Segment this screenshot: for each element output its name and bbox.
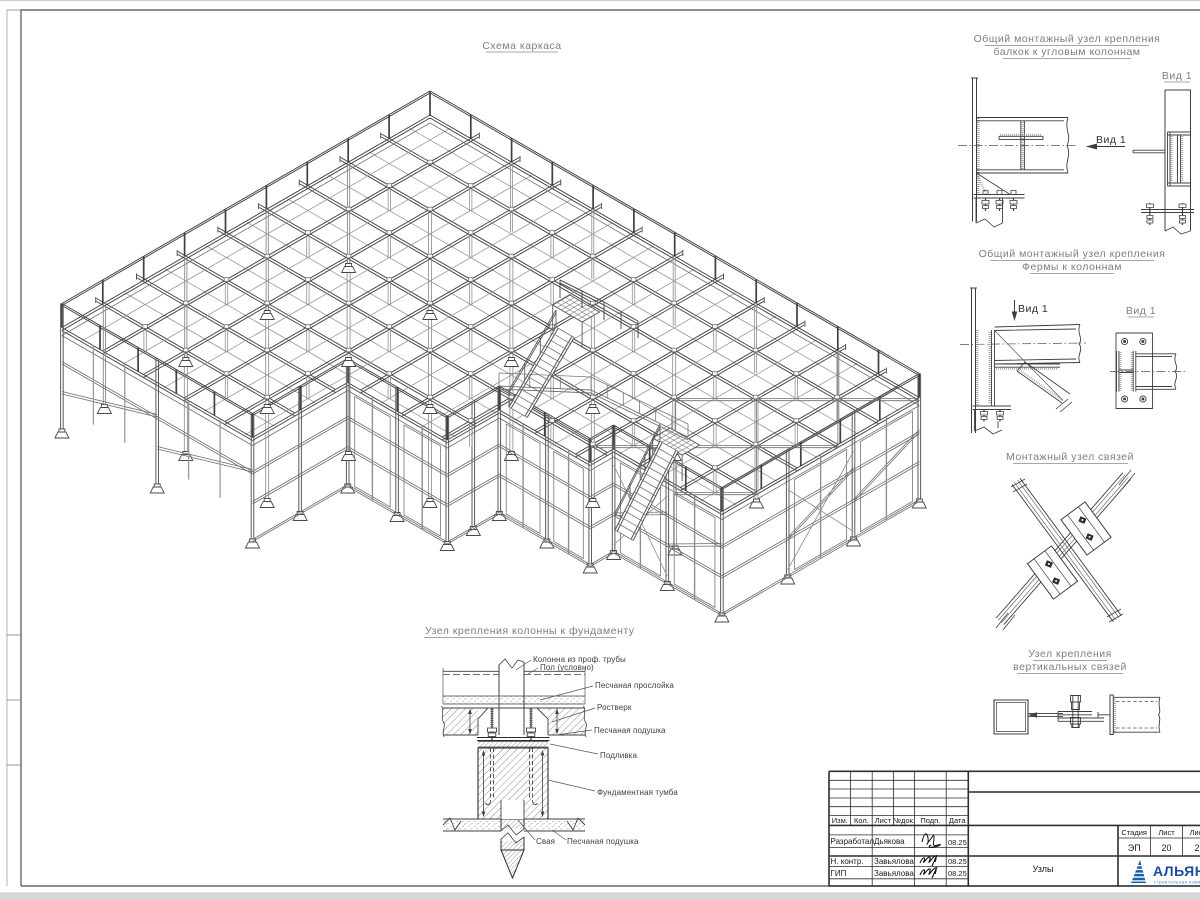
svg-text:балкок к угловым колоннам: балкок к угловым колоннам xyxy=(993,46,1140,58)
svg-text:Узел крепления колонны к фунда: Узел крепления колонны к фундаменту xyxy=(425,625,635,637)
svg-text:Н. контр.: Н. контр. xyxy=(831,857,864,866)
svg-text:Монтажный узел связей: Монтажный узел связей xyxy=(1006,451,1134,463)
svg-text:Вид 1: Вид 1 xyxy=(1096,134,1126,146)
svg-text:Свая: Свая xyxy=(536,837,555,846)
svg-text:Песчаная подушка: Песчаная подушка xyxy=(594,726,666,735)
svg-text:Узлы: Узлы xyxy=(1033,864,1054,874)
svg-text:вертикальных связей: вертикальных связей xyxy=(1013,661,1127,673)
svg-text:Завьялова: Завьялова xyxy=(874,869,914,878)
svg-text:Стадия: Стадия xyxy=(1121,828,1147,837)
svg-text:строительная комп: строительная комп xyxy=(1154,880,1200,885)
svg-text:08.25: 08.25 xyxy=(948,838,967,847)
svg-text:Фермы к колоннам: Фермы к колоннам xyxy=(1022,261,1122,273)
svg-text:Дьякова: Дьякова xyxy=(874,837,905,846)
svg-text:Ростверк: Ростверк xyxy=(597,703,632,712)
svg-text:08.25: 08.25 xyxy=(948,869,967,878)
svg-text:Разработал: Разработал xyxy=(831,837,875,846)
svg-text:Лист: Лист xyxy=(875,816,892,825)
svg-text:№док.: №док. xyxy=(893,816,915,825)
svg-text:Общий монтажный узел крепления: Общий монтажный узел крепления xyxy=(979,248,1166,260)
svg-text:Лис: Лис xyxy=(1190,828,1200,837)
svg-text:08.25: 08.25 xyxy=(948,857,967,866)
svg-text:20: 20 xyxy=(1161,843,1171,853)
svg-text:Песчаная подушка: Песчаная подушка xyxy=(567,837,639,846)
svg-text:Подп.: Подп. xyxy=(920,816,940,825)
svg-text:Песчаная прослойка: Песчаная прослойка xyxy=(595,681,674,690)
svg-text:Общий монтажный узел крепления: Общий монтажный узел крепления xyxy=(974,33,1161,45)
svg-text:Кол.: Кол. xyxy=(854,816,869,825)
svg-text:Изм.: Изм. xyxy=(832,816,848,825)
svg-text:Подливка: Подливка xyxy=(600,751,637,760)
svg-text:Вид 1: Вид 1 xyxy=(1018,303,1048,315)
svg-text:2: 2 xyxy=(1194,843,1199,853)
svg-text:АЛЬЯН: АЛЬЯН xyxy=(1153,863,1200,879)
svg-text:Фундаментная тумба: Фундаментная тумба xyxy=(597,788,678,797)
svg-text:Дата: Дата xyxy=(949,816,966,825)
svg-text:Лист: Лист xyxy=(1158,828,1175,837)
svg-text:Схема каркаса: Схема каркаса xyxy=(482,40,561,52)
svg-text:Вид 1: Вид 1 xyxy=(1162,70,1192,82)
svg-text:Вид 1: Вид 1 xyxy=(1126,305,1156,317)
svg-text:Завьялова: Завьялова xyxy=(874,857,914,866)
svg-text:Узел крепления: Узел крепления xyxy=(1028,648,1112,660)
svg-text:ЭП: ЭП xyxy=(1128,843,1141,853)
svg-text:ГИП: ГИП xyxy=(831,869,847,878)
svg-text:Пол (условно): Пол (условно) xyxy=(540,663,594,672)
